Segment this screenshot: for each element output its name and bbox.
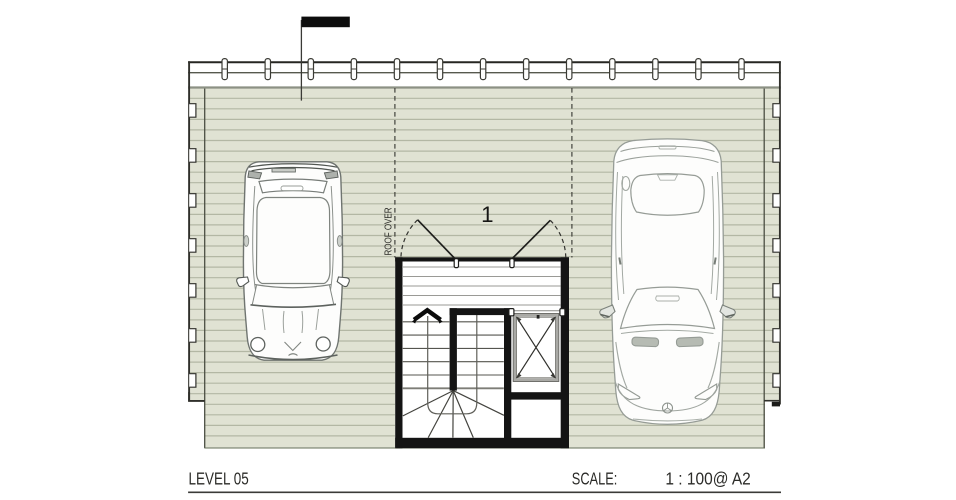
- svg-text:ROOF OVER: ROOF OVER: [384, 208, 395, 256]
- svg-text:1 : 100@ A2: 1 : 100@ A2: [665, 468, 750, 488]
- svg-text:LEVEL 05: LEVEL 05: [189, 468, 249, 488]
- svg-text:SCALE:: SCALE:: [572, 468, 618, 488]
- svg-text:1: 1: [481, 202, 493, 227]
